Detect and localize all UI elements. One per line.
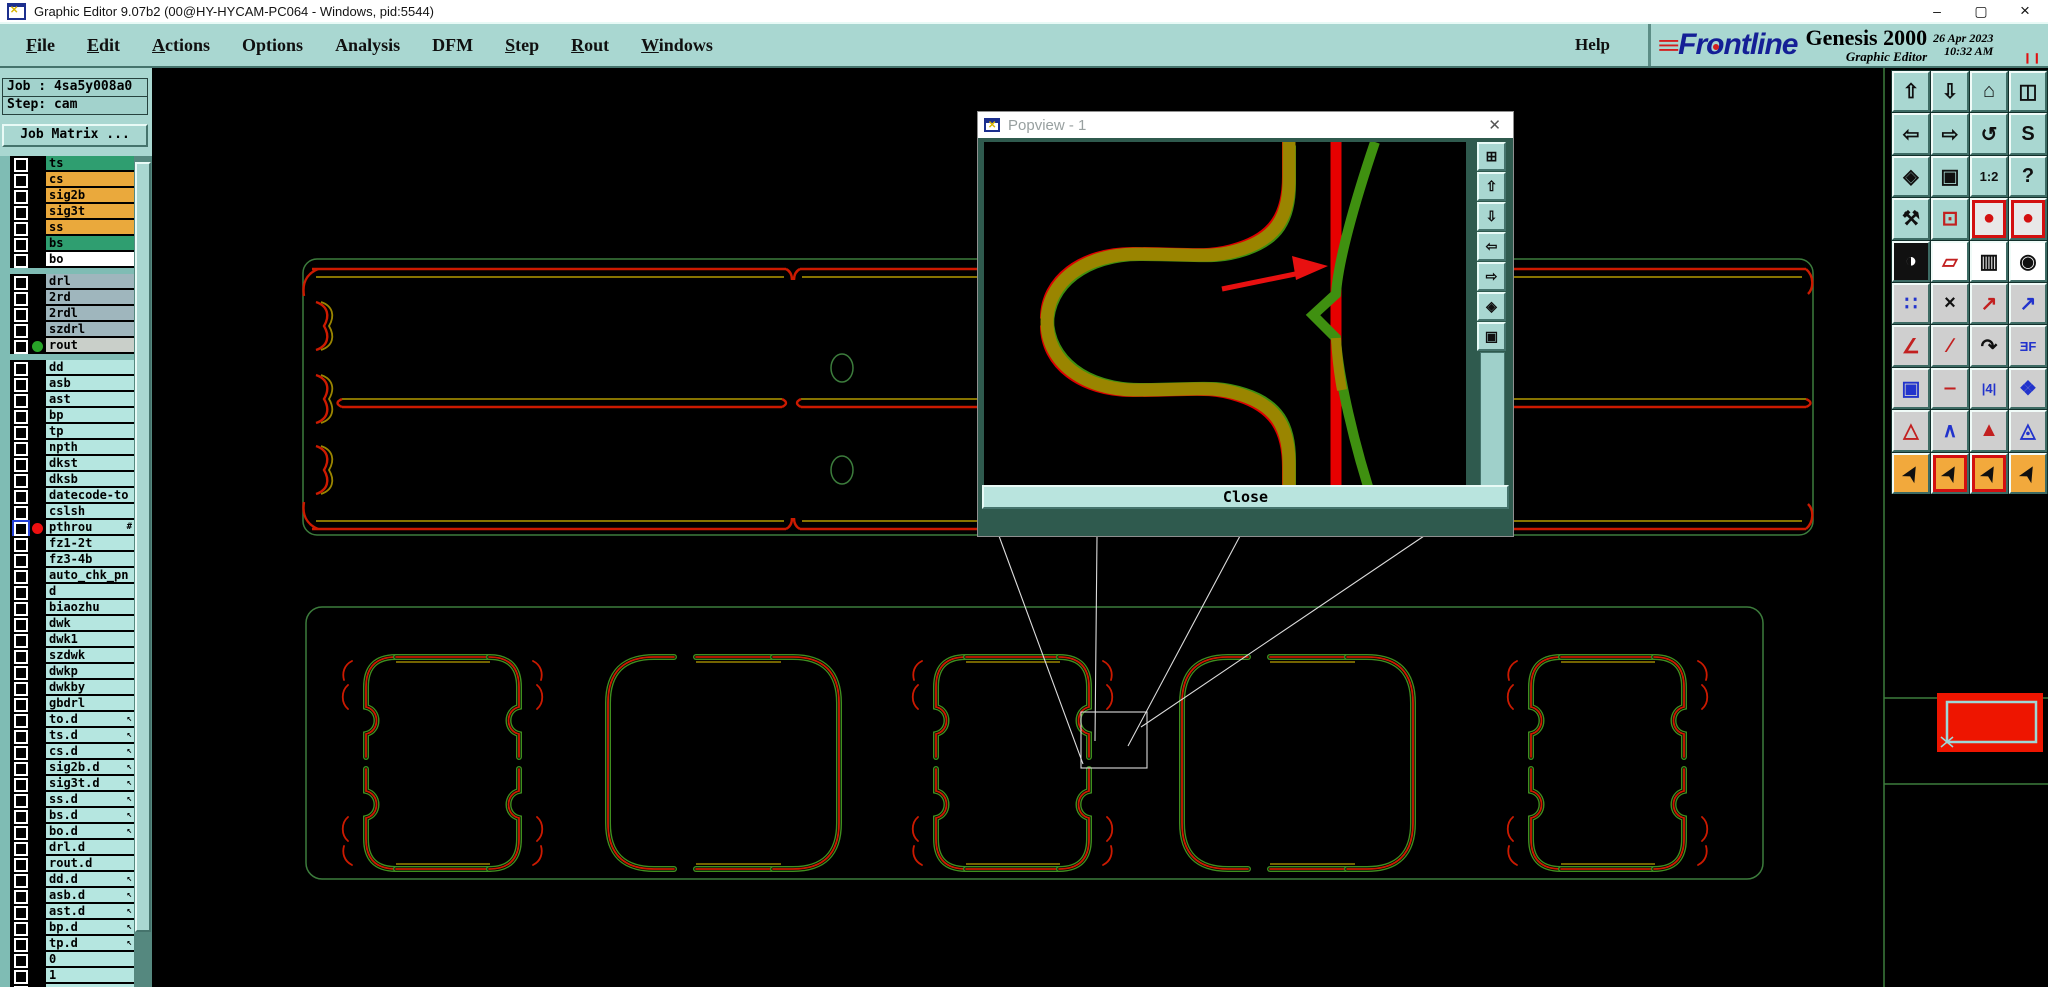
layer-row-to.d[interactable]: to.d↖ bbox=[10, 712, 134, 728]
copy-to-layer-icon: ▣ bbox=[1902, 376, 1921, 401]
pan-up-icon: ⇧ bbox=[1903, 79, 1920, 104]
layer-checkbox[interactable] bbox=[14, 938, 28, 952]
layer-checkbox[interactable] bbox=[14, 666, 28, 680]
popview-close-icon[interactable]: ✕ bbox=[1488, 116, 1501, 134]
layer-attr-icon: ↖ bbox=[127, 872, 132, 887]
popview-button-column: ⊞⇧⇩⇦⇨◈▣ bbox=[1477, 142, 1508, 500]
layer-name[interactable]: dkst bbox=[46, 456, 134, 471]
layer-row-cslsh[interactable]: cslsh bbox=[10, 504, 134, 520]
layer-name[interactable]: bp bbox=[46, 408, 134, 423]
layer-checkbox[interactable] bbox=[14, 222, 28, 236]
layer-name[interactable]: ast.d↖ bbox=[46, 904, 134, 919]
layer-name[interactable]: ts.d↖ bbox=[46, 728, 134, 743]
layer-name[interactable]: ast bbox=[46, 392, 134, 407]
layer-name[interactable]: fz1-2t bbox=[46, 536, 134, 551]
job-matrix-button[interactable]: Job Matrix ... bbox=[2, 124, 148, 147]
layer-name[interactable]: to.d↖ bbox=[46, 712, 134, 727]
layer-row-szdrl[interactable]: szdrl bbox=[10, 322, 134, 338]
layer-row-datecode-to[interactable]: datecode-to bbox=[10, 488, 134, 504]
layer-row-tp.d[interactable]: tp.d↖ bbox=[10, 936, 134, 952]
display-mode-1-button[interactable]: ● bbox=[1970, 198, 2008, 239]
pause-indicator-icon: ❙❙ bbox=[2023, 53, 2042, 64]
layer-checkbox[interactable] bbox=[14, 842, 28, 856]
layer-row-asb[interactable]: asb bbox=[10, 376, 134, 392]
pv-pan-down-button[interactable]: ⇩ bbox=[1477, 202, 1506, 231]
layer-checkbox[interactable] bbox=[14, 794, 28, 808]
layer-row-sig2b.d[interactable]: sig2b.d↖ bbox=[10, 760, 134, 776]
select-single-icon: ➤ bbox=[1896, 460, 1926, 487]
menu-analysis[interactable]: Analysis bbox=[335, 35, 400, 55]
layer-name[interactable]: cs.d↖ bbox=[46, 744, 134, 759]
tri-mode-4-button[interactable]: ◬ bbox=[2009, 410, 2047, 451]
pv-pan-right-button[interactable]: ⇨ bbox=[1477, 262, 1506, 291]
layer-attr-icon: ↖ bbox=[127, 824, 132, 839]
layer-checkbox[interactable] bbox=[14, 276, 28, 290]
angle-tool-icon: ∠ bbox=[1902, 334, 1920, 359]
net-points-button[interactable]: ∷ bbox=[1892, 283, 1930, 324]
layer-row-bp.d[interactable]: bp.d↖ bbox=[10, 920, 134, 936]
surface-tool-icon: ❖ bbox=[2019, 376, 2037, 401]
layer-name[interactable]: datecode-to bbox=[46, 488, 134, 503]
layer-row-ts[interactable]: ts bbox=[10, 156, 134, 172]
layer-row-tp[interactable]: tp bbox=[10, 424, 134, 440]
pv-popout-button[interactable]: ⊞ bbox=[1477, 142, 1506, 171]
mirror-tool-button[interactable]: ƎF bbox=[2009, 325, 2047, 366]
tri-mode-3-icon: ▲ bbox=[1979, 419, 1999, 442]
move-feature-icon: ↗ bbox=[1981, 291, 1998, 316]
product-name: Genesis 2000 bbox=[1806, 27, 1928, 49]
layer-checkbox[interactable] bbox=[14, 554, 28, 568]
select-poly-button[interactable]: ➤ bbox=[1970, 453, 2008, 494]
arc-tool-icon: ↷ bbox=[1981, 334, 1998, 359]
minimize-button[interactable]: – bbox=[1928, 3, 1946, 19]
slant-line-icon: ∕ bbox=[1948, 335, 1951, 358]
layer-name[interactable]: tp bbox=[46, 424, 134, 439]
angle-tool-button[interactable]: ∠ bbox=[1892, 325, 1930, 366]
layer-scrollbar[interactable] bbox=[134, 156, 152, 987]
pan-up-button[interactable]: ⇧ bbox=[1892, 71, 1930, 112]
layer-row-cs.d[interactable]: cs.d↖ bbox=[10, 744, 134, 760]
layer-row-ast[interactable]: ast bbox=[10, 392, 134, 408]
layer-checkbox[interactable] bbox=[14, 324, 28, 338]
layer-row-ts.d[interactable]: ts.d↖ bbox=[10, 728, 134, 744]
maximize-button[interactable]: ▢ bbox=[1972, 3, 1990, 20]
menu-rout[interactable]: Rout bbox=[571, 35, 609, 55]
layer-row-sig2b[interactable]: sig2b bbox=[10, 188, 134, 204]
layer-name[interactable]: pthrou# bbox=[46, 520, 134, 535]
layer-row-cs[interactable]: cs bbox=[10, 172, 134, 188]
menu-step[interactable]: Step bbox=[505, 35, 539, 55]
pan-right-button[interactable]: ⇨ bbox=[1931, 113, 1969, 154]
pan-right-icon: ⇨ bbox=[1942, 122, 1959, 147]
layer-checkbox[interactable] bbox=[14, 954, 28, 968]
layer-name[interactable]: biaozhu bbox=[46, 600, 134, 615]
zoom-in-icon: ▣ bbox=[1941, 164, 1960, 189]
surface-tool-button[interactable]: ❖ bbox=[2009, 368, 2047, 409]
layer-name[interactable]: bo bbox=[46, 252, 134, 267]
copy-feature-icon: ↗ bbox=[2020, 291, 2037, 316]
layer-row-pthrou[interactable]: pthrou# bbox=[10, 520, 134, 536]
popview-close-button[interactable]: Close bbox=[982, 485, 1509, 509]
origin-target-icon: ⊡ bbox=[1942, 206, 1959, 231]
product-edition: Graphic Editor bbox=[1846, 49, 1927, 64]
display-mode-1-icon: ● bbox=[1983, 207, 1995, 230]
layer-name[interactable]: sig3t bbox=[46, 204, 134, 219]
copy-invert-button[interactable]: ◑ bbox=[1892, 241, 1930, 282]
layer-name[interactable]: drl.d bbox=[46, 840, 134, 855]
datetime: 26 Apr 2023 10:32 AM bbox=[1933, 32, 1993, 58]
layer-checkbox[interactable] bbox=[14, 238, 28, 252]
layer-row-0[interactable]: 0 bbox=[10, 952, 134, 968]
tri-mode-2-button[interactable]: ∧ bbox=[1931, 410, 1969, 451]
tri-mode-2-icon: ∧ bbox=[1943, 418, 1958, 443]
layer-checkbox[interactable] bbox=[14, 442, 28, 456]
popview-titlebar[interactable]: ✕ Popview - 1 ✕ bbox=[978, 112, 1513, 138]
layer-list: tscssig2bsig3tssbsbodrl2rd2rdlszdrlroutd… bbox=[0, 156, 134, 987]
select-poly-icon: ➤ bbox=[1974, 460, 2004, 487]
layer-checkbox[interactable] bbox=[14, 618, 28, 632]
layer-name[interactable]: dwkp bbox=[46, 664, 134, 679]
menu-edit[interactable]: Edit bbox=[87, 35, 120, 55]
zoom-1-2-button[interactable]: 1:2 bbox=[1970, 156, 2008, 197]
layer-checkbox[interactable] bbox=[14, 922, 28, 936]
layer-row-sig3t.d[interactable]: sig3t.d↖ bbox=[10, 776, 134, 792]
layer-attr-icon: ↖ bbox=[127, 936, 132, 951]
spacing-4-button[interactable]: |4| bbox=[1970, 368, 2008, 409]
s-route-icon: S bbox=[2021, 123, 2034, 146]
menubar: FileEditActionsOptionsAnalysisDFMStepRou… bbox=[0, 22, 2048, 68]
layer-row-bs[interactable]: bs bbox=[10, 236, 134, 252]
layer-row-szdwk[interactable]: szdwk bbox=[10, 648, 134, 664]
layer-name[interactable]: bs bbox=[46, 236, 134, 251]
layer-name[interactable]: szdrl bbox=[46, 322, 134, 337]
select-net-icon: ➤ bbox=[2013, 460, 2043, 487]
select-net-button[interactable]: ➤ bbox=[2009, 453, 2047, 494]
delete-x-icon: × bbox=[1944, 292, 1956, 315]
layer-name[interactable]: ss bbox=[46, 220, 134, 235]
delete-x-button[interactable]: × bbox=[1931, 283, 1969, 324]
layer-row-dwkp[interactable]: dwkp bbox=[10, 664, 134, 680]
tri-mode-4-icon: ◬ bbox=[2020, 418, 2035, 443]
layer-row-drl.d[interactable]: drl.d bbox=[10, 840, 134, 856]
pv-pan-up-button[interactable]: ⇧ bbox=[1477, 172, 1506, 201]
layer-row-dkst[interactable]: dkst bbox=[10, 456, 134, 472]
layer-row-dksb[interactable]: dksb bbox=[10, 472, 134, 488]
layer-attr-icon: ↖ bbox=[127, 776, 132, 791]
layer-name[interactable]: drl bbox=[46, 274, 134, 289]
popview-icon: ✕ bbox=[984, 118, 1000, 132]
layer-name[interactable]: 0 bbox=[46, 952, 134, 967]
layer-checkbox[interactable] bbox=[14, 778, 28, 792]
layer-checkbox[interactable] bbox=[14, 174, 28, 188]
layer-checkbox[interactable] bbox=[14, 634, 28, 648]
app-icon: ✕ bbox=[7, 3, 26, 20]
help-mark-icon: ? bbox=[2022, 165, 2034, 188]
layer-name[interactable]: cslsh bbox=[46, 504, 134, 519]
layer-checkbox[interactable] bbox=[14, 308, 28, 322]
menu-help[interactable]: Help bbox=[1575, 35, 1610, 55]
layer-name[interactable]: asb bbox=[46, 376, 134, 391]
layer-checkbox[interactable] bbox=[14, 394, 28, 408]
popview-title: Popview - 1 bbox=[1008, 117, 1086, 134]
menu-file[interactable]: File bbox=[26, 35, 55, 55]
popview-window: ✕ Popview - 1 ✕ bbox=[977, 111, 1514, 537]
popview-scrollbar[interactable] bbox=[1480, 352, 1505, 500]
layer-name[interactable]: szdwk bbox=[46, 648, 134, 663]
titlebar: ✕ Graphic Editor 9.07b2 (00@HY-HYCAM-PC0… bbox=[0, 0, 2048, 23]
zoom-out-button[interactable]: ◈ bbox=[1892, 156, 1930, 197]
layer-row-auto_chk_pn[interactable]: auto_chk_pn bbox=[10, 568, 134, 584]
window-xy-button[interactable]: ◫ bbox=[2009, 71, 2047, 112]
display-mode-2-icon: ● bbox=[2022, 207, 2034, 230]
layer-checkbox[interactable] bbox=[14, 570, 28, 584]
job-label: Job : 4sa5y008a0 bbox=[2, 78, 148, 97]
layer-row-2rdl[interactable]: 2rdl bbox=[10, 306, 134, 322]
layer-checkbox[interactable] bbox=[14, 490, 28, 504]
layer-checkbox[interactable] bbox=[14, 602, 28, 616]
layer-checkbox[interactable] bbox=[14, 340, 28, 354]
layer-checkbox[interactable] bbox=[14, 458, 28, 472]
layer-name[interactable]: dd.d↖ bbox=[46, 872, 134, 887]
break-tool-button[interactable]: ‒ bbox=[1931, 368, 1969, 409]
layer-attr-icon: ↖ bbox=[127, 728, 132, 743]
close-button[interactable]: × bbox=[2016, 1, 2034, 21]
layer-name[interactable]: ss.d↖ bbox=[46, 792, 134, 807]
layer-row-ss[interactable]: ss bbox=[10, 220, 134, 236]
move-feature-button[interactable]: ↗ bbox=[1970, 283, 2008, 324]
menu-options[interactable]: Options bbox=[242, 35, 303, 55]
layer-row-d[interactable]: d bbox=[10, 584, 134, 600]
layer-name[interactable]: bs.d↖ bbox=[46, 808, 134, 823]
layer-row-dd.d[interactable]: dd.d↖ bbox=[10, 872, 134, 888]
slant-line-button[interactable]: ∕ bbox=[1931, 325, 1969, 366]
layer-checkbox[interactable] bbox=[14, 190, 28, 204]
pan-left-button[interactable]: ⇦ bbox=[1892, 113, 1930, 154]
tri-mode-1-button[interactable]: △ bbox=[1892, 410, 1930, 451]
layer-name[interactable]: 2rd bbox=[46, 290, 134, 305]
layer-name[interactable]: sig2b bbox=[46, 188, 134, 203]
select-frame-icon: ➤ bbox=[1935, 460, 1965, 487]
layer-checkbox[interactable] bbox=[14, 254, 28, 268]
layer-checkbox[interactable] bbox=[14, 158, 28, 172]
layer-name[interactable]: tp.d↖ bbox=[46, 936, 134, 951]
mirror-tool-icon: ƎF bbox=[2020, 339, 2037, 354]
copy-feature-button[interactable]: ↗ bbox=[2009, 283, 2047, 324]
olive-overlap-segment bbox=[1336, 338, 1342, 390]
layer-name[interactable]: dksb bbox=[46, 472, 134, 487]
zoom-previous-icon: ↺ bbox=[1981, 122, 1998, 147]
select-single-button[interactable]: ➤ bbox=[1892, 453, 1930, 494]
pad-dot-icon: ◉ bbox=[2019, 249, 2036, 274]
layer-checkbox[interactable] bbox=[14, 730, 28, 744]
layer-checkbox[interactable] bbox=[14, 426, 28, 440]
net-points-icon: ∷ bbox=[1905, 291, 1918, 316]
layer-scrollbar-thumb[interactable] bbox=[135, 162, 151, 932]
layer-row-biaozhu[interactable]: biaozhu bbox=[10, 600, 134, 616]
layer-attr-icon: ↖ bbox=[127, 808, 132, 823]
pan-down-button[interactable]: ⇩ bbox=[1931, 71, 1969, 112]
layer-name[interactable]: fz3-4b bbox=[46, 552, 134, 567]
layer-checkbox[interactable] bbox=[14, 506, 28, 520]
layer-checkbox[interactable] bbox=[14, 858, 28, 872]
setup-tools-button[interactable]: ⚒ bbox=[1892, 198, 1930, 239]
layer-checkbox[interactable] bbox=[14, 586, 28, 600]
window-xy-icon: ◫ bbox=[2019, 79, 2038, 104]
pan-left-icon: ⇦ bbox=[1903, 122, 1920, 147]
layer-checkbox[interactable] bbox=[14, 362, 28, 376]
layer-row-drl[interactable]: drl bbox=[10, 274, 134, 290]
layer-checkbox[interactable] bbox=[14, 682, 28, 696]
layer-checkbox[interactable] bbox=[14, 378, 28, 392]
layer-checkbox[interactable] bbox=[14, 698, 28, 712]
pan-down-icon: ⇩ bbox=[1942, 79, 1959, 104]
layer-name[interactable]: ts bbox=[46, 156, 134, 171]
tri-mode-3-button[interactable]: ▲ bbox=[1970, 410, 2008, 451]
layer-checkbox[interactable] bbox=[14, 890, 28, 904]
layer-row-bp[interactable]: bp bbox=[10, 408, 134, 424]
layer-row-asb.d[interactable]: asb.d↖ bbox=[10, 888, 134, 904]
layer-name[interactable]: d bbox=[46, 584, 134, 599]
layer-row-rout[interactable]: rout bbox=[10, 338, 134, 354]
layer-row-fz3-4b[interactable]: fz3-4b bbox=[10, 552, 134, 568]
setup-tools-icon: ⚒ bbox=[1902, 206, 1920, 231]
copy-to-layer-button[interactable]: ▣ bbox=[1892, 368, 1930, 409]
layer-checkbox[interactable] bbox=[14, 906, 28, 920]
origin-target-button[interactable]: ⊡ bbox=[1931, 198, 1969, 239]
layer-active-dot bbox=[32, 523, 43, 534]
graphic-editor-window: ✕ Graphic Editor 9.07b2 (00@HY-HYCAM-PC0… bbox=[0, 0, 2048, 987]
transform-shape-icon: ▱ bbox=[1942, 249, 1957, 274]
home-view-icon: ⌂ bbox=[1983, 80, 1995, 103]
layer-checkbox[interactable] bbox=[14, 746, 28, 760]
layer-row-sig3t[interactable]: sig3t bbox=[10, 204, 134, 220]
layer-row-2rd[interactable]: 2rd bbox=[10, 290, 134, 306]
layer-row-bo.d[interactable]: bo.d↖ bbox=[10, 824, 134, 840]
brand-area: ≡ Frontline Genesis 2000 Graphic Editor … bbox=[1648, 24, 2048, 66]
right-toolbar: ⇧⇩⌂◫⇦⇨↺S◈▣1:2?⚒⊡●●◑▱▥◉∷×↗↗∠∕↷ƎF▣‒|4|❖△∧▲… bbox=[1891, 70, 2048, 494]
layer-name[interactable]: dd bbox=[46, 360, 134, 375]
layer-name[interactable]: sig2b.d↖ bbox=[46, 760, 134, 775]
layer-checkbox[interactable] bbox=[14, 762, 28, 776]
pv-zoom-fit-button[interactable]: ◈ bbox=[1477, 292, 1506, 321]
tri-mode-1-icon: △ bbox=[1903, 418, 1918, 443]
layer-name[interactable]: gbdrl bbox=[46, 696, 134, 711]
copy-invert-icon: ◑ bbox=[1905, 250, 1917, 273]
zoom-in-button[interactable]: ▣ bbox=[1931, 156, 1969, 197]
layer-name[interactable]: auto_chk_pn bbox=[46, 568, 134, 583]
layer-name[interactable]: rout bbox=[46, 338, 134, 353]
measure-ruler-button[interactable]: ▥ bbox=[1970, 241, 2008, 282]
layer-checkbox[interactable] bbox=[14, 292, 28, 306]
layer-checkbox[interactable] bbox=[14, 474, 28, 488]
layer-attr-icon: ↖ bbox=[127, 888, 132, 903]
layer-checkbox[interactable] bbox=[14, 826, 28, 840]
layer-name[interactable]: sig3t.d↖ bbox=[46, 776, 134, 791]
layer-checkbox[interactable] bbox=[14, 206, 28, 220]
layer-row-bo[interactable]: bo bbox=[10, 252, 134, 268]
layer-attr-icon: ↖ bbox=[127, 792, 132, 807]
display-mode-2-button[interactable]: ● bbox=[2009, 198, 2047, 239]
layer-row-ss.d[interactable]: ss.d↖ bbox=[10, 792, 134, 808]
layer-row-dwk1[interactable]: dwk1 bbox=[10, 632, 134, 648]
layer-attr-icon: ↖ bbox=[127, 760, 132, 775]
layer-checkbox[interactable] bbox=[14, 650, 28, 664]
layer-checkbox[interactable] bbox=[14, 874, 28, 888]
layer-row-dwkby[interactable]: dwkby bbox=[10, 680, 134, 696]
layer-checkbox[interactable] bbox=[14, 410, 28, 424]
layer-row-gbdrl[interactable]: gbdrl bbox=[10, 696, 134, 712]
select-frame-button[interactable]: ➤ bbox=[1931, 453, 1969, 494]
layer-attr-icon: ↖ bbox=[127, 904, 132, 919]
layer-attr-icon: ↖ bbox=[127, 712, 132, 727]
layer-attr-icon: ↖ bbox=[127, 744, 132, 759]
layer-name[interactable]: asb.d↖ bbox=[46, 888, 134, 903]
step-label: Step: cam bbox=[2, 96, 148, 115]
zoom-previous-button[interactable]: ↺ bbox=[1970, 113, 2008, 154]
layer-row-fz1-2t[interactable]: fz1-2t bbox=[10, 536, 134, 552]
layer-name[interactable]: rout.d bbox=[46, 856, 134, 871]
zoom-out-icon: ◈ bbox=[1903, 164, 1918, 189]
pad-dot-button[interactable]: ◉ bbox=[2009, 241, 2047, 282]
sidebar: Job : 4sa5y008a0 Step: cam Job Matrix ..… bbox=[0, 68, 152, 987]
layer-name[interactable]: npth bbox=[46, 440, 134, 455]
layer-name[interactable]: dwk bbox=[46, 616, 134, 631]
s-route-button[interactable]: S bbox=[2009, 113, 2047, 154]
layer-name[interactable]: cs bbox=[46, 172, 134, 187]
layer-attr-icon: # bbox=[127, 520, 132, 535]
layer-row-1[interactable]: 1 bbox=[10, 968, 134, 984]
home-view-button[interactable]: ⌂ bbox=[1970, 71, 2008, 112]
window-title: Graphic Editor 9.07b2 (00@HY-HYCAM-PC064… bbox=[34, 4, 434, 19]
zoom-1-2-icon: 1:2 bbox=[1980, 169, 1999, 184]
pv-zoom-extents-button[interactable]: ▣ bbox=[1477, 322, 1506, 351]
menu-windows[interactable]: Windows bbox=[641, 35, 713, 55]
menu-actions[interactable]: Actions bbox=[152, 35, 210, 55]
break-tool-icon: ‒ bbox=[1944, 377, 1955, 400]
layer-checkbox[interactable] bbox=[14, 714, 28, 728]
layer-name[interactable]: 2rdl bbox=[46, 306, 134, 321]
transform-shape-button[interactable]: ▱ bbox=[1931, 241, 1969, 282]
layer-checkbox[interactable] bbox=[14, 538, 28, 552]
logo-speed-lines: ≡ bbox=[1657, 30, 1680, 61]
layer-checkbox[interactable] bbox=[14, 970, 28, 984]
layer-name[interactable]: dwk1 bbox=[46, 632, 134, 647]
layer-active-dot bbox=[32, 341, 43, 352]
layer-row-rout.d[interactable]: rout.d bbox=[10, 856, 134, 872]
spacing-4-icon: |4| bbox=[1982, 381, 1997, 396]
frontline-logo: ≡ Frontline bbox=[1661, 28, 1798, 62]
pv-pan-left-button[interactable]: ⇦ bbox=[1477, 232, 1506, 261]
layer-row-bs.d[interactable]: bs.d↖ bbox=[10, 808, 134, 824]
help-mark-button[interactable]: ? bbox=[2009, 156, 2047, 197]
layer-name[interactable]: 1 bbox=[46, 968, 134, 983]
popview-canvas[interactable] bbox=[984, 142, 1466, 508]
layer-row-ast.d[interactable]: ast.d↖ bbox=[10, 904, 134, 920]
layer-name[interactable]: bp.d↖ bbox=[46, 920, 134, 935]
layer-row-dwk[interactable]: dwk bbox=[10, 616, 134, 632]
layer-row-dd[interactable]: dd bbox=[10, 360, 134, 376]
layer-checkbox[interactable] bbox=[14, 522, 28, 536]
layer-attr-icon: ↖ bbox=[127, 920, 132, 935]
layer-name[interactable]: bo.d↖ bbox=[46, 824, 134, 839]
measure-ruler-icon: ▥ bbox=[1980, 249, 1999, 274]
layer-checkbox[interactable] bbox=[14, 810, 28, 824]
arc-tool-button[interactable]: ↷ bbox=[1970, 325, 2008, 366]
menu-dfm[interactable]: DFM bbox=[432, 35, 473, 55]
layer-name[interactable]: dwkby bbox=[46, 680, 134, 695]
layer-row-npth[interactable]: npth bbox=[10, 440, 134, 456]
